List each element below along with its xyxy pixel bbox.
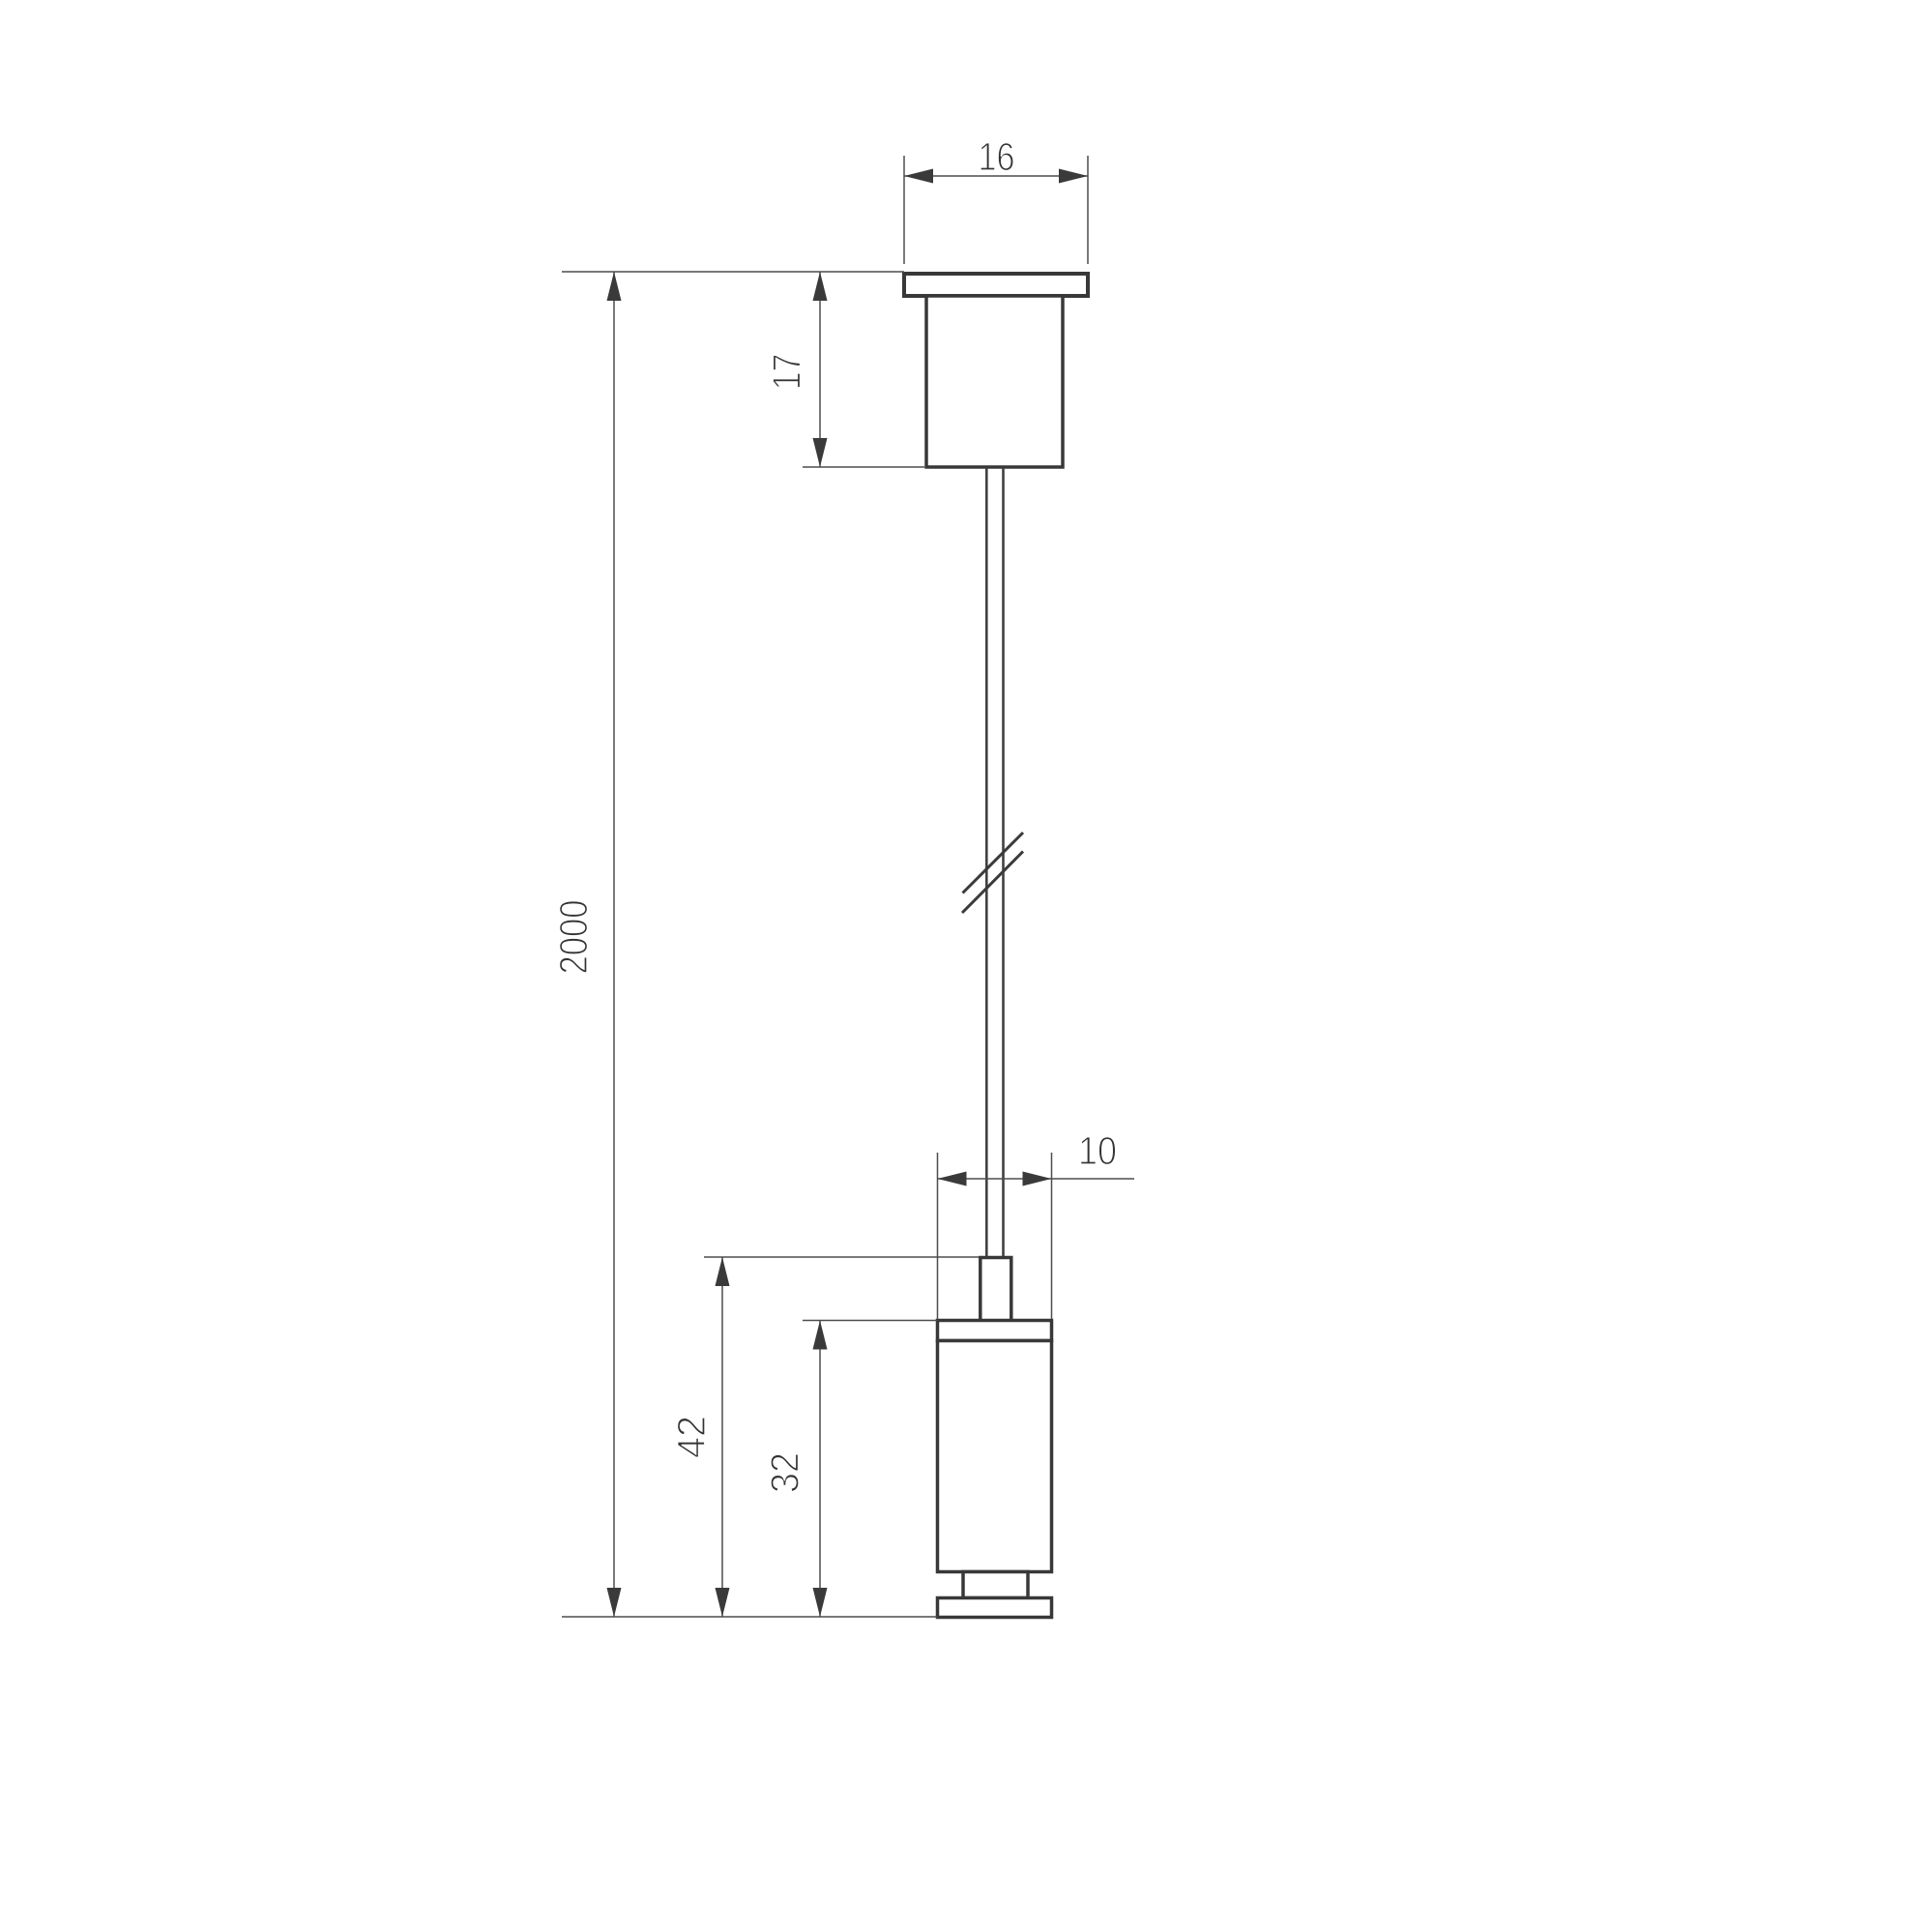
svg-text:32: 32 xyxy=(763,1452,807,1493)
svg-text:17: 17 xyxy=(765,354,809,391)
svg-text:10: 10 xyxy=(1078,1128,1117,1173)
svg-text:42: 42 xyxy=(669,1416,714,1458)
svg-text:2000: 2000 xyxy=(551,900,596,975)
svg-text:16: 16 xyxy=(979,134,1015,179)
